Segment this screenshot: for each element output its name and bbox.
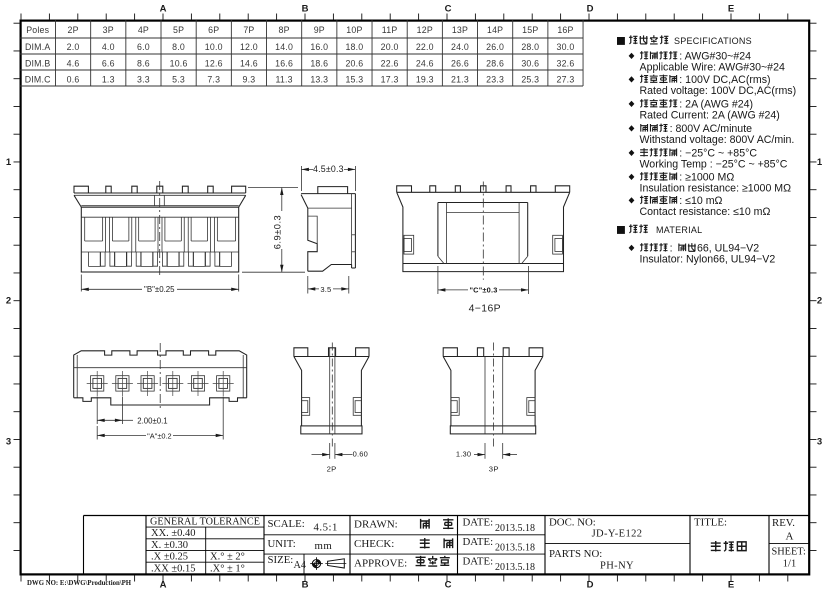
svg-text:E: E xyxy=(728,580,734,591)
svg-text:16.0: 16.0 xyxy=(310,42,328,52)
svg-text:3P: 3P xyxy=(103,25,114,35)
svg-text:B: B xyxy=(302,580,309,591)
svg-text:14.0: 14.0 xyxy=(275,42,293,52)
svg-text:18.0: 18.0 xyxy=(345,42,363,52)
svg-text:SIZE:: SIZE: xyxy=(268,554,294,566)
svg-text:10P: 10P xyxy=(346,25,362,35)
svg-text:6P: 6P xyxy=(208,25,219,35)
svg-text:X. ±0.30: X. ±0.30 xyxy=(151,540,188,551)
svg-text:A: A xyxy=(160,580,167,591)
svg-text:3.5: 3.5 xyxy=(320,285,331,294)
svg-text:13P: 13P xyxy=(452,25,468,35)
svg-text:JD-Y-E122: JD-Y-E122 xyxy=(592,529,643,540)
svg-text:14P: 14P xyxy=(487,25,503,35)
svg-text:14.6: 14.6 xyxy=(240,58,258,68)
svg-text:3P: 3P xyxy=(489,464,499,473)
svg-text:16.6: 16.6 xyxy=(275,58,293,68)
svg-text:CHECK:: CHECK: xyxy=(354,538,394,550)
svg-text:22.0: 22.0 xyxy=(416,42,434,52)
svg-text:DWG NO: E:\DWG\Production\PH: DWG NO: E:\DWG\Production\PH xyxy=(27,580,132,587)
svg-text:C: C xyxy=(445,4,452,15)
svg-text:DIM.C: DIM.C xyxy=(25,74,51,84)
svg-text:12P: 12P xyxy=(417,25,433,35)
svg-text:X.° ± 2°: X.° ± 2° xyxy=(210,552,245,563)
svg-text:30.6: 30.6 xyxy=(521,58,539,68)
svg-text:1: 1 xyxy=(6,157,12,168)
svg-text:2P: 2P xyxy=(67,25,78,35)
svg-text:1.30: 1.30 xyxy=(456,450,471,459)
svg-text:C: C xyxy=(445,580,452,591)
svg-text:6.0: 6.0 xyxy=(137,42,150,52)
svg-text:2013.5.18: 2013.5.18 xyxy=(495,543,535,554)
svg-text:10.0: 10.0 xyxy=(205,42,223,52)
svg-text:1.3: 1.3 xyxy=(102,74,115,84)
svg-text:30.0: 30.0 xyxy=(557,42,575,52)
svg-text:A: A xyxy=(786,531,794,543)
svg-text:"C"±0.3: "C"±0.3 xyxy=(469,286,497,295)
svg-text:Contact resistance: ≤10 mΩ: Contact resistance: ≤10 mΩ xyxy=(640,206,771,218)
svg-text:6.6: 6.6 xyxy=(102,58,115,68)
svg-text:7P: 7P xyxy=(243,25,254,35)
svg-text:UNIT:: UNIT: xyxy=(268,538,296,550)
svg-text:.X° ± 1°: .X° ± 1° xyxy=(210,563,245,574)
svg-text:8.0: 8.0 xyxy=(172,42,185,52)
svg-text:7.3: 7.3 xyxy=(207,74,220,84)
svg-text:13.3: 13.3 xyxy=(310,74,328,84)
svg-text:18.6: 18.6 xyxy=(310,58,328,68)
svg-text:12.0: 12.0 xyxy=(240,42,258,52)
svg-text:26.6: 26.6 xyxy=(451,58,469,68)
svg-text:4P: 4P xyxy=(138,25,149,35)
svg-text:2013.5.18: 2013.5.18 xyxy=(495,562,535,573)
svg-text:0.6: 0.6 xyxy=(67,74,80,84)
svg-text:1/1: 1/1 xyxy=(783,559,796,570)
svg-text:2013.5.18: 2013.5.18 xyxy=(495,523,535,534)
svg-text:SPECIFICATIONS: SPECIFICATIONS xyxy=(674,36,752,46)
svg-text:17.3: 17.3 xyxy=(381,74,399,84)
svg-text:Rated Current: 2A (AWG #24): Rated Current: 2A (AWG #24) xyxy=(640,110,780,122)
svg-text:5.3: 5.3 xyxy=(172,74,185,84)
svg-text:0.60: 0.60 xyxy=(353,450,368,459)
svg-text:20.0: 20.0 xyxy=(381,42,399,52)
svg-text:1: 1 xyxy=(817,157,823,168)
svg-text:Poles: Poles xyxy=(26,25,49,35)
svg-text:DIM.A: DIM.A xyxy=(25,42,50,52)
svg-text:4.0: 4.0 xyxy=(102,42,115,52)
svg-text:GENERAL TOLERANCE: GENERAL TOLERANCE xyxy=(150,517,260,528)
svg-text:11P: 11P xyxy=(382,25,398,35)
svg-text:Withstand voltage: 800V AC/min: Withstand voltage: 800V AC/min. xyxy=(640,134,795,146)
svg-text:4−16P: 4−16P xyxy=(469,304,501,315)
svg-text:2.00±0.1: 2.00±0.1 xyxy=(137,417,167,426)
svg-text:APPROVE:: APPROVE: xyxy=(354,558,407,570)
svg-text:DIM.B: DIM.B xyxy=(25,58,50,68)
svg-text:"A"±0.2: "A"±0.2 xyxy=(147,431,172,440)
svg-text:12.6: 12.6 xyxy=(205,58,223,68)
svg-text:3.3: 3.3 xyxy=(137,74,150,84)
svg-text:28.0: 28.0 xyxy=(521,42,539,52)
svg-text:Insulator: Nylon66, UL94−V2: Insulator: Nylon66, UL94−V2 xyxy=(640,254,776,266)
svg-text:Insulation resistance: ≥1000 M: Insulation resistance: ≥1000 MΩ xyxy=(640,183,792,195)
svg-text:21.3: 21.3 xyxy=(451,74,469,84)
svg-text:8P: 8P xyxy=(279,25,290,35)
svg-text:D: D xyxy=(587,580,594,591)
svg-text:27.3: 27.3 xyxy=(557,74,575,84)
svg-text:PH-NY: PH-NY xyxy=(600,561,634,572)
svg-text:2: 2 xyxy=(817,296,822,307)
svg-text:3: 3 xyxy=(817,437,822,448)
svg-text:Applicable Wire: AWG#30~#24: Applicable Wire: AWG#30~#24 xyxy=(640,62,785,74)
svg-text:2: 2 xyxy=(6,296,11,307)
svg-text:25.3: 25.3 xyxy=(521,74,539,84)
svg-text:16P: 16P xyxy=(557,25,573,35)
svg-text:Rated voltage: 100V DC,AC(rms): Rated voltage: 100V DC,AC(rms) xyxy=(640,85,797,97)
svg-text:A: A xyxy=(160,4,167,15)
svg-text:24.0: 24.0 xyxy=(451,42,469,52)
svg-text:mm: mm xyxy=(315,540,333,552)
svg-text:22.6: 22.6 xyxy=(381,58,399,68)
svg-text:MATERIAL: MATERIAL xyxy=(656,225,702,235)
svg-text:D: D xyxy=(587,4,594,15)
svg-text:"B"±0.25: "B"±0.25 xyxy=(144,285,175,294)
svg-text:4.6: 4.6 xyxy=(67,58,80,68)
svg-text:PARTS NO:: PARTS NO: xyxy=(549,548,602,560)
svg-text:5P: 5P xyxy=(173,25,184,35)
svg-text:4.5±0.3: 4.5±0.3 xyxy=(313,164,344,174)
svg-text:Working Temp : −25°C ~ +85°C: Working Temp : −25°C ~ +85°C xyxy=(640,159,788,171)
svg-text:DATE:: DATE: xyxy=(463,556,494,568)
svg-text:2.0: 2.0 xyxy=(67,42,80,52)
svg-text:A4: A4 xyxy=(294,560,306,571)
svg-text:TITLE:: TITLE: xyxy=(694,517,727,529)
svg-text:15P: 15P xyxy=(522,25,538,35)
svg-text:32.6: 32.6 xyxy=(557,58,575,68)
svg-text:6.9±0.3: 6.9±0.3 xyxy=(273,215,283,249)
svg-text:DATE:: DATE: xyxy=(463,517,494,529)
svg-text:DRAWN:: DRAWN: xyxy=(354,519,398,531)
svg-text:DATE:: DATE: xyxy=(463,536,494,548)
svg-text:.XX ±0.15: .XX ±0.15 xyxy=(151,563,196,574)
svg-text:9P: 9P xyxy=(314,25,325,35)
svg-text:10.6: 10.6 xyxy=(170,58,188,68)
svg-text:REV.: REV. xyxy=(772,517,795,529)
svg-text:B: B xyxy=(302,4,309,15)
svg-text:2P: 2P xyxy=(327,464,337,473)
svg-text:9.3: 9.3 xyxy=(243,74,256,84)
svg-text:24.6: 24.6 xyxy=(416,58,434,68)
svg-text:28.6: 28.6 xyxy=(486,58,504,68)
svg-text:3: 3 xyxy=(6,437,11,448)
svg-text:DOC. NO:: DOC. NO: xyxy=(549,517,596,529)
svg-text:E: E xyxy=(728,4,734,15)
svg-text:11.3: 11.3 xyxy=(275,74,292,84)
svg-text:XX. ±0.40: XX. ±0.40 xyxy=(151,528,196,539)
svg-text:15.3: 15.3 xyxy=(345,74,363,84)
svg-text:19.3: 19.3 xyxy=(416,74,434,84)
svg-text:.X ±0.25: .X ±0.25 xyxy=(151,552,188,563)
svg-text:SCALE:: SCALE: xyxy=(268,518,305,530)
svg-text:SHEET:: SHEET: xyxy=(772,547,807,558)
svg-text:23.3: 23.3 xyxy=(486,74,504,84)
svg-text:8.6: 8.6 xyxy=(137,58,150,68)
svg-text:4.5:1: 4.5:1 xyxy=(314,522,338,534)
svg-text:26.0: 26.0 xyxy=(486,42,504,52)
svg-text:20.6: 20.6 xyxy=(345,58,363,68)
